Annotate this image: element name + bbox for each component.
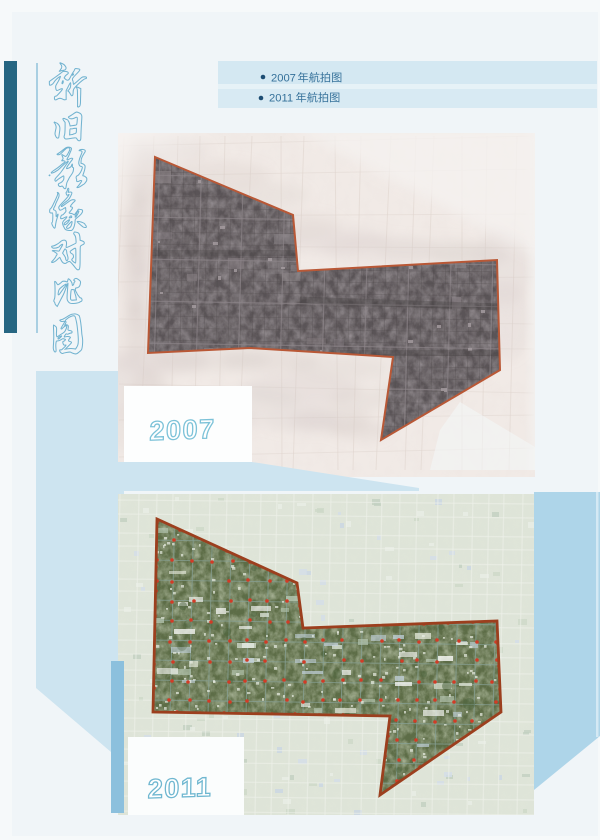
svg-text:2011: 2011 <box>269 93 293 105</box>
svg-text:2007: 2007 <box>271 73 296 85</box>
svg-text:2007: 2007 <box>149 414 216 446</box>
svg-text:2011: 2011 <box>147 772 212 804</box>
